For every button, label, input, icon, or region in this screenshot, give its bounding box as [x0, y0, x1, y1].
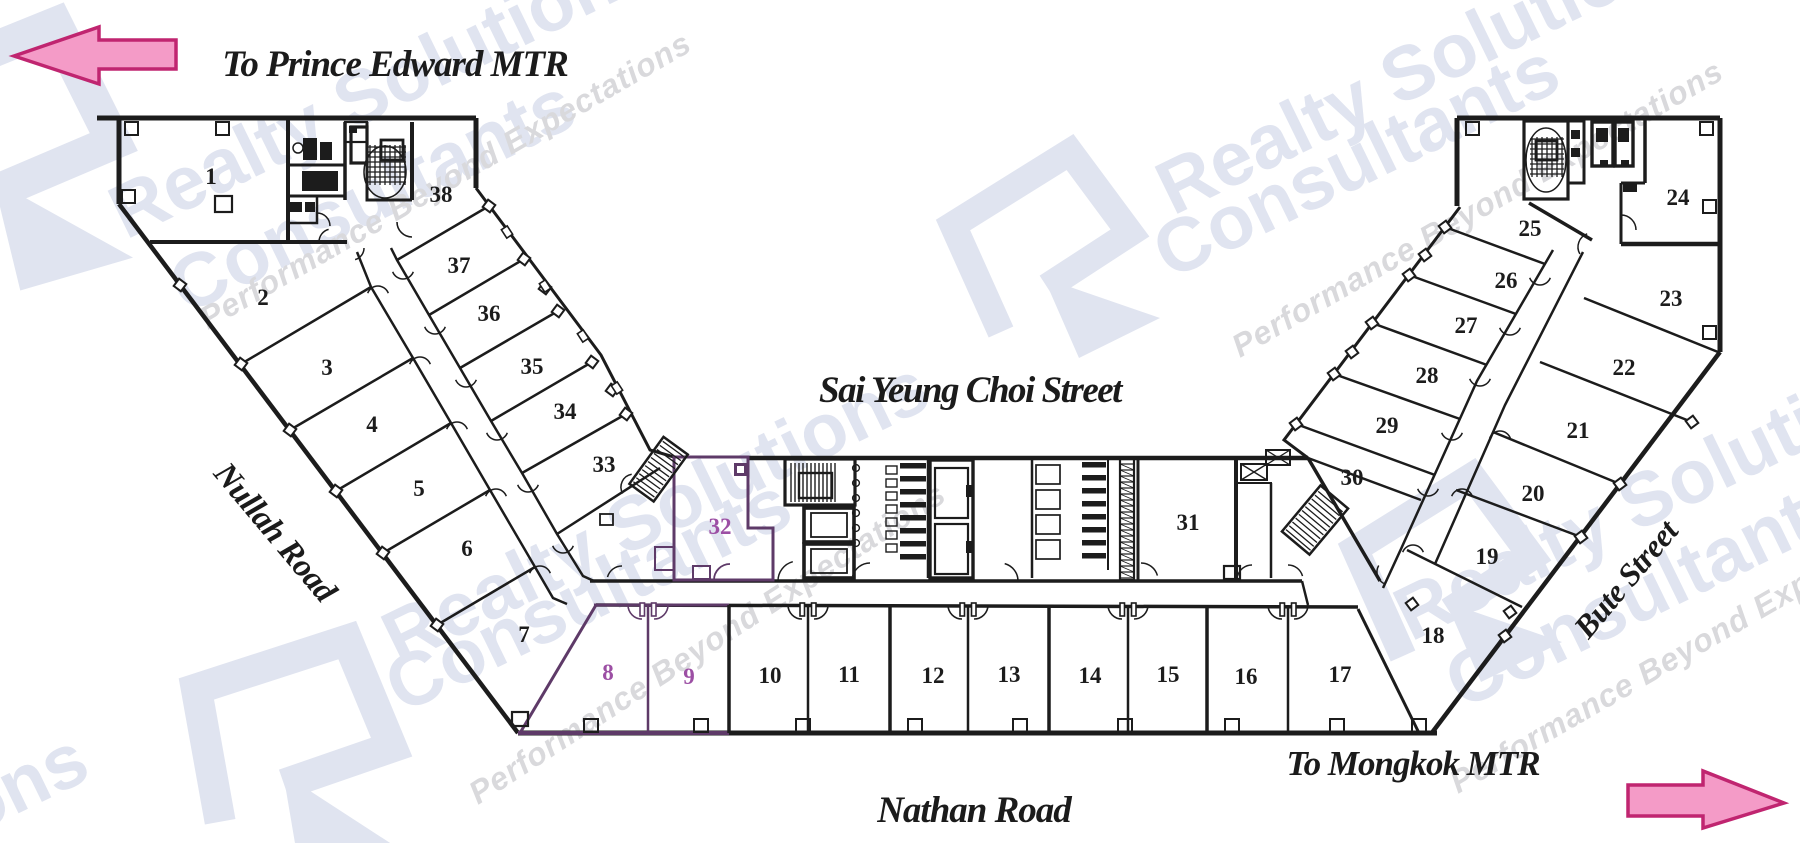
svg-text:1: 1 — [205, 164, 217, 189]
svg-text:28: 28 — [1416, 363, 1439, 388]
svg-text:33: 33 — [593, 452, 616, 477]
svg-text:9: 9 — [683, 664, 695, 689]
svg-text:37: 37 — [448, 253, 471, 278]
svg-text:ons: ons — [0, 716, 101, 843]
svg-text:15: 15 — [1157, 662, 1180, 687]
svg-text:23: 23 — [1660, 286, 1683, 311]
svg-text:20: 20 — [1522, 481, 1545, 506]
svg-text:Sai Yeung Choi Street: Sai Yeung Choi Street — [819, 370, 1124, 411]
svg-text:11: 11 — [838, 662, 860, 687]
svg-text:31: 31 — [1177, 510, 1200, 535]
svg-text:34: 34 — [554, 399, 578, 424]
svg-text:17: 17 — [1329, 662, 1352, 687]
svg-text:13: 13 — [998, 662, 1021, 687]
svg-text:Nullah Road: Nullah Road — [206, 455, 344, 610]
svg-text:10: 10 — [759, 663, 782, 688]
svg-text:38: 38 — [430, 182, 453, 207]
svg-text:19: 19 — [1476, 544, 1499, 569]
svg-text:32: 32 — [709, 514, 732, 539]
svg-text:26: 26 — [1495, 268, 1518, 293]
svg-text:24: 24 — [1667, 185, 1691, 210]
svg-text:4: 4 — [366, 412, 378, 437]
svg-text:7: 7 — [518, 622, 530, 647]
svg-text:2: 2 — [257, 285, 269, 310]
svg-text:25: 25 — [1519, 216, 1542, 241]
svg-text:22: 22 — [1613, 355, 1636, 380]
svg-text:16: 16 — [1235, 664, 1258, 689]
svg-text:6: 6 — [461, 536, 473, 561]
svg-text:To Mongkok MTR: To Mongkok MTR — [1286, 744, 1540, 783]
svg-text:3: 3 — [321, 355, 333, 380]
svg-text:14: 14 — [1079, 663, 1103, 688]
svg-text:Nathan Road: Nathan Road — [876, 790, 1072, 831]
svg-text:27: 27 — [1455, 313, 1478, 338]
svg-text:29: 29 — [1376, 413, 1399, 438]
svg-text:18: 18 — [1422, 623, 1445, 648]
svg-text:To Prince Edward MTR: To Prince Edward MTR — [222, 44, 568, 85]
svg-text:35: 35 — [521, 354, 544, 379]
svg-text:5: 5 — [413, 476, 425, 501]
svg-text:12: 12 — [922, 663, 945, 688]
svg-text:36: 36 — [478, 301, 501, 326]
svg-text:21: 21 — [1567, 418, 1590, 443]
svg-text:8: 8 — [602, 660, 614, 685]
svg-text:30: 30 — [1341, 465, 1364, 490]
